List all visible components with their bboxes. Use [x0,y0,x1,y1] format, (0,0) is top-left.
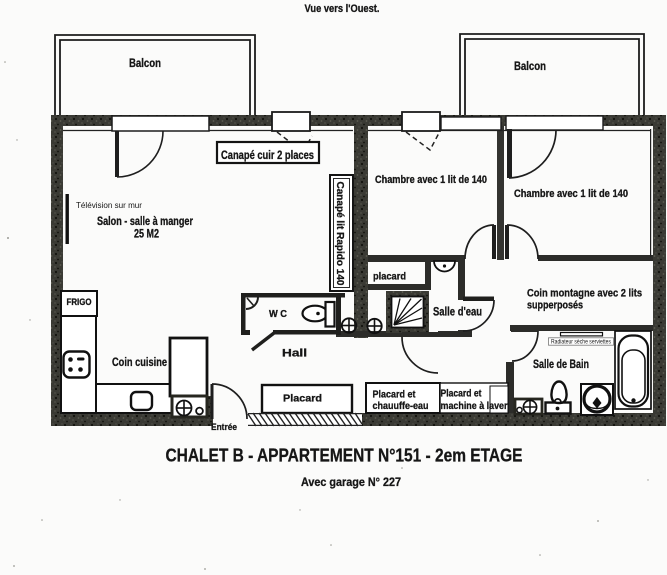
svg-text:Salle de Bain: Salle de Bain [533,359,589,371]
svg-text:Canapé cuir 2 places: Canapé cuir 2 places [221,148,314,162]
svg-text:Chambre avec 1 lit de 140: Chambre avec 1 lit de 140 [375,174,487,186]
svg-text:W C: W C [269,309,287,320]
svg-text:Salon - salle à manger: Salon - salle à manger [97,216,193,228]
svg-text:Télévision sur mur: Télévision sur mur [76,201,142,210]
svg-text:Vue vers l'Ouest.: Vue vers l'Ouest. [305,3,380,15]
svg-text:25 M2: 25 M2 [134,229,159,241]
svg-text:Balcon: Balcon [514,61,546,73]
svg-text:Placard et: Placard et [373,389,416,401]
svg-text:machine à laver: machine à laver [441,400,508,412]
svg-text:Canapé lit Rapido 140: Canapé lit Rapido 140 [334,182,346,286]
svg-text:Chambre avec 1 lit de 140: Chambre avec 1 lit de 140 [514,188,628,200]
svg-text:FRIGO: FRIGO [67,297,92,307]
svg-text:Avec garage N° 227: Avec garage N° 227 [301,477,401,489]
svg-text:Salle d'eau: Salle d'eau [433,307,482,319]
svg-text:Balcon: Balcon [129,58,161,70]
svg-text:Entrée: Entrée [211,422,237,433]
svg-text:placard: placard [373,271,406,283]
svg-text:Placard: Placard [283,393,322,405]
svg-text:CHALET B - APPARTEMENT N°151 -: CHALET B - APPARTEMENT N°151 - 2em ETAGE [166,446,523,466]
svg-text:Coin montagne avec 2 lits: Coin montagne avec 2 lits [527,288,642,300]
svg-text:Radiateur sèche serviettes: Radiateur sèche serviettes [551,340,611,346]
svg-text:Hall: Hall [282,348,307,360]
svg-text:supperposés: supperposés [527,300,583,312]
svg-text:Placard et: Placard et [441,388,482,400]
svg-text:chauuffe-eau: chauuffe-eau [373,400,429,412]
svg-text:Coin cuisine: Coin cuisine [112,357,167,369]
